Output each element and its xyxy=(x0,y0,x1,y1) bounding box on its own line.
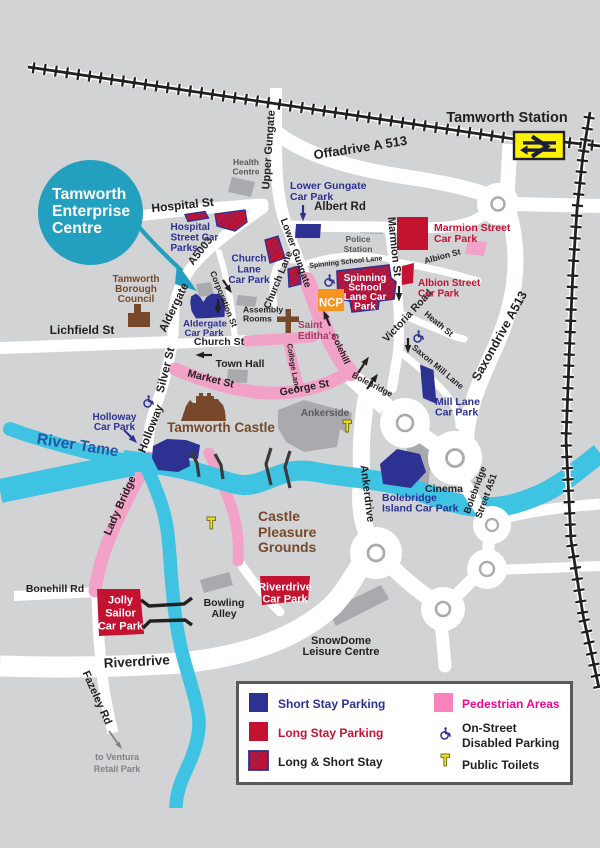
svg-text:Car Park: Car Park xyxy=(435,407,478,419)
svg-text:Enterprise: Enterprise xyxy=(52,203,130,220)
svg-text:Pedestrian Areas: Pedestrian Areas xyxy=(462,697,560,711)
svg-text:Castle: Castle xyxy=(258,508,300,524)
svg-text:Saint: Saint xyxy=(298,320,323,331)
svg-text:Jolly: Jolly xyxy=(108,595,134,607)
svg-text:Station: Station xyxy=(344,244,373,254)
svg-text:NCP: NCP xyxy=(319,298,344,310)
svg-text:On-Street: On-Street xyxy=(462,721,517,735)
svg-text:Disabled Parking: Disabled Parking xyxy=(462,736,559,750)
svg-text:Car Park: Car Park xyxy=(434,233,477,245)
svg-text:Sailor: Sailor xyxy=(105,608,136,620)
svg-text:Car Park: Car Park xyxy=(228,275,270,286)
svg-text:Health: Health xyxy=(233,157,259,167)
svg-text:Public Toilets: Public Toilets xyxy=(462,758,539,772)
svg-text:Rooms: Rooms xyxy=(243,314,272,324)
svg-text:Street Car: Street Car xyxy=(171,233,219,244)
svg-text:Car Park: Car Park xyxy=(184,328,224,339)
svg-text:Long Stay Parking: Long Stay Parking xyxy=(278,726,383,740)
svg-text:Tamworth Castle: Tamworth Castle xyxy=(167,420,275,435)
svg-text:Alley: Alley xyxy=(211,608,236,620)
svg-text:Police: Police xyxy=(345,234,370,244)
svg-text:Hospital: Hospital xyxy=(171,222,211,233)
svg-text:Car Park: Car Park xyxy=(290,191,333,203)
svg-text:Riverdrive: Riverdrive xyxy=(258,582,312,594)
svg-text:Editha's: Editha's xyxy=(298,331,337,342)
svg-text:Short Stay Parking: Short Stay Parking xyxy=(278,697,385,711)
svg-text:Car Park: Car Park xyxy=(98,621,144,633)
svg-text:Parks: Parks xyxy=(171,243,199,254)
svg-text:to Ventura: to Ventura xyxy=(95,752,140,762)
svg-text:Tamworth: Tamworth xyxy=(52,186,126,203)
svg-text:Pleasure: Pleasure xyxy=(258,524,317,540)
svg-text:Lane: Lane xyxy=(237,265,261,276)
svg-text:Centre: Centre xyxy=(52,220,102,237)
svg-text:Centre: Centre xyxy=(233,167,260,177)
svg-text:Car Park: Car Park xyxy=(94,422,136,433)
svg-text:Car Park: Car Park xyxy=(262,594,308,606)
svg-text:Park: Park xyxy=(354,302,376,313)
svg-text:Bonehill Rd: Bonehill Rd xyxy=(26,583,84,595)
svg-text:Lichfield St: Lichfield St xyxy=(50,323,115,337)
svg-text:Grounds: Grounds xyxy=(258,539,317,555)
svg-text:Car Park: Car Park xyxy=(418,289,460,300)
svg-text:Island Car Park: Island Car Park xyxy=(382,503,459,515)
svg-text:Retail Park: Retail Park xyxy=(94,764,142,774)
svg-text:Church: Church xyxy=(232,254,267,265)
svg-text:Long & Short Stay: Long & Short Stay xyxy=(278,755,383,769)
svg-text:Council: Council xyxy=(118,294,155,305)
svg-text:Albion Street: Albion Street xyxy=(418,278,481,289)
svg-text:Town Hall: Town Hall xyxy=(216,358,265,370)
svg-text:Tamworth Station: Tamworth Station xyxy=(446,110,567,126)
svg-text:Ankerside: Ankerside xyxy=(301,408,350,419)
svg-text:Leisure Centre: Leisure Centre xyxy=(302,646,379,658)
